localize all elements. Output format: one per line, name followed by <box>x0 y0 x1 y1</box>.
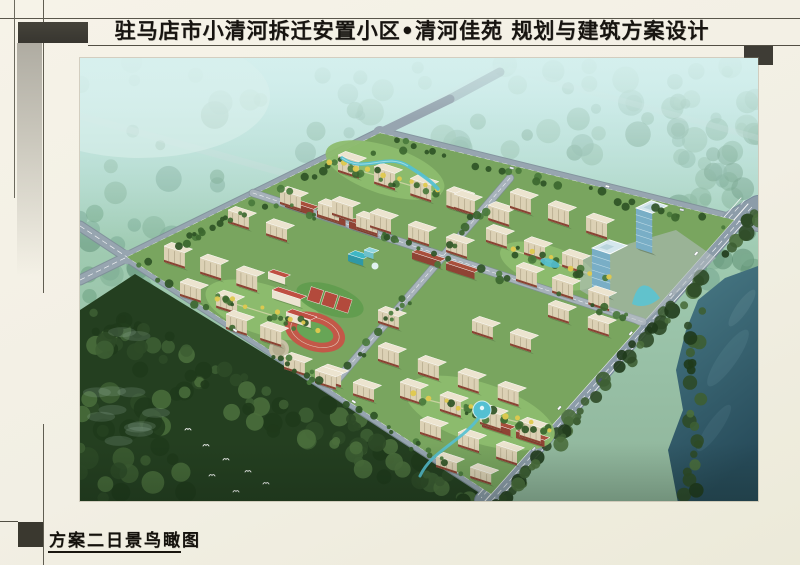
top-atmosphere <box>80 58 758 118</box>
footer-rule <box>0 521 18 522</box>
drawing-caption: 方案二日景鸟瞰图 <box>49 526 201 551</box>
aerial-rendering-canvas <box>80 58 758 501</box>
left-vertical-line-outer <box>14 0 15 198</box>
aerial-rendering <box>80 58 758 501</box>
presentation-board: 驻马店市小清河拆迁安置小区•清河佳苑 规划与建筑方案设计 方案二日景鸟瞰图 <box>0 0 800 565</box>
caption-underline <box>48 551 181 553</box>
header-accent-block <box>18 22 88 43</box>
left-vertical-line-inner-upper <box>43 0 44 293</box>
bottom-vignette <box>80 443 758 501</box>
board-title: 驻马店市小清河拆迁安置小区•清河佳苑 规划与建筑方案设计 <box>94 19 730 45</box>
footer-accent-square <box>18 522 43 547</box>
left-vertical-line-inner-lower <box>43 424 44 565</box>
title-underline-rule <box>88 45 800 46</box>
header-gradient-bar <box>17 43 42 288</box>
